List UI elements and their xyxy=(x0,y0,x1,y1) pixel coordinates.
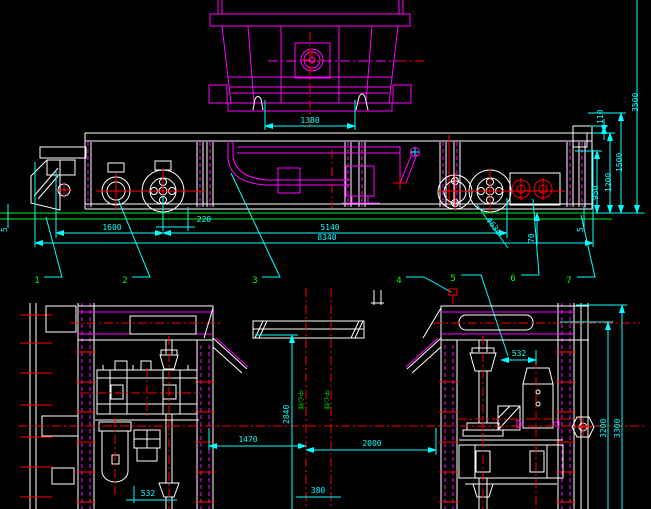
top-beams xyxy=(70,306,640,373)
right-bogie xyxy=(438,168,565,213)
dim-height-950: 950 xyxy=(591,185,600,200)
dim-outer-width: 3300 xyxy=(613,419,622,438)
dim-motor-offset: 532 xyxy=(141,489,156,498)
dim-centerline-gap: 380 xyxy=(311,486,326,495)
dim-wheel-base: 5140 xyxy=(320,223,339,232)
side-view-dimensions: 1380 220 1600 5140 8340 950 1200 1500 35… xyxy=(0,0,643,248)
callout-6: 6 xyxy=(510,274,515,284)
dim-bay-width-left: 1470 xyxy=(238,435,257,444)
dim-bay-width-right: 2000 xyxy=(362,439,381,448)
callout-7: 7 xyxy=(566,276,571,286)
dim-frame-height: 2840 xyxy=(282,405,291,424)
callout-4: 4 xyxy=(396,276,401,286)
cad-drawing: 1380 220 1600 5140 8340 950 1200 1500 35… xyxy=(0,0,651,509)
dim-height-1500: 1500 xyxy=(615,153,624,172)
callout-5: 5 xyxy=(450,274,455,284)
dim-inner-width: 3200 xyxy=(599,419,608,438)
cad-canvas: 1380 220 1600 5140 8340 950 1200 1500 35… xyxy=(0,0,651,509)
left-bay-machinery xyxy=(80,336,200,509)
side-view: 1380 220 1600 5140 8340 950 1200 1500 35… xyxy=(0,0,645,356)
centerline-label-right: 中心线 xyxy=(323,390,332,410)
ladder xyxy=(20,303,78,509)
rail-lines xyxy=(0,213,645,219)
left-bogie xyxy=(96,161,205,213)
hopper xyxy=(209,0,424,128)
dim-rail-gap-left: 5 xyxy=(0,227,9,232)
saddle xyxy=(228,141,420,208)
top-fittings xyxy=(371,289,457,305)
dim-hopper-seat-width: 1380 xyxy=(300,116,319,125)
dim-lip-height: 110 xyxy=(596,109,605,124)
dim-rail-head: 70 xyxy=(527,233,536,243)
dim-jack-offset: 532 xyxy=(512,349,527,358)
callout-3: 3 xyxy=(252,276,257,286)
dim-overall-height: 3500 xyxy=(631,93,640,112)
end-view: 中心线 中心线 2840 1470 2000 380 532 532 3200 … xyxy=(18,288,645,509)
dim-overall-length: 8340 xyxy=(317,233,336,242)
dim-deck-height: 1200 xyxy=(604,173,613,192)
dim-end-overhang: 1600 xyxy=(102,223,121,232)
chassis xyxy=(31,126,592,213)
callout-2: 2 xyxy=(122,276,127,286)
centerline-label-left: 中心线 xyxy=(297,390,306,410)
callout-1: 1 xyxy=(34,276,39,286)
dim-axle-offset: 220 xyxy=(197,215,212,224)
